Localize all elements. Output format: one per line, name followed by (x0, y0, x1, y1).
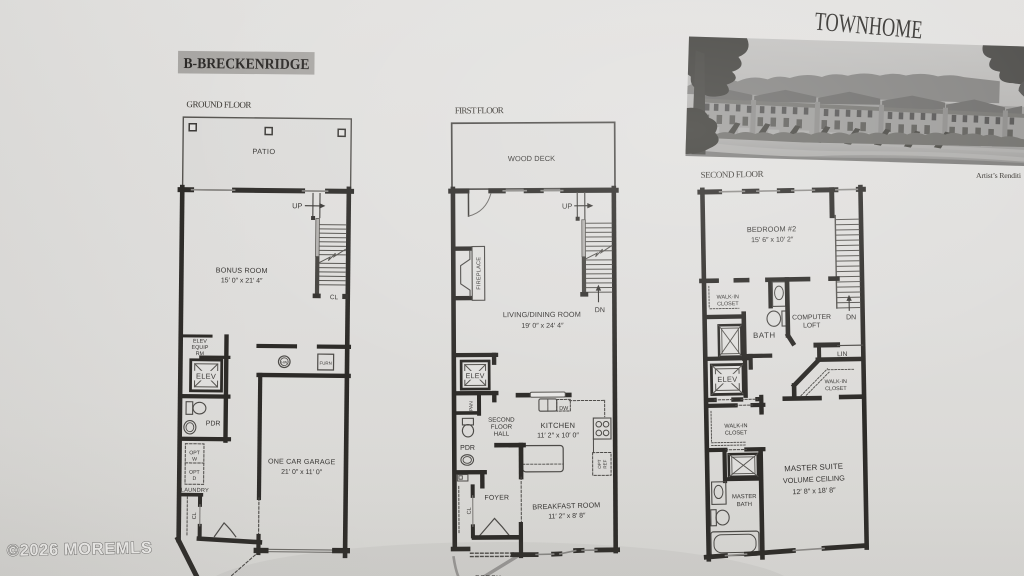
svg-text:BATH: BATH (737, 502, 752, 508)
svg-text:11′ 2″ x 10′ 0″: 11′ 2″ x 10′ 0″ (537, 432, 579, 439)
svg-text:UP: UP (292, 201, 302, 210)
svg-text:CLOSET: CLOSET (825, 386, 847, 392)
svg-text:WALK-IN: WALK-IN (724, 423, 747, 429)
svg-text:CL: CL (330, 294, 339, 301)
svg-text:DW: DW (559, 406, 569, 412)
svg-text:DN: DN (846, 314, 856, 321)
svg-text:BATH: BATH (753, 331, 776, 340)
svg-text:WOOD DECK: WOOD DECK (508, 154, 555, 163)
svg-text:HW: HW (281, 360, 288, 364)
svg-text:LOFT: LOFT (803, 322, 820, 329)
svg-text:COMPUTER: COMPUTER (792, 314, 831, 322)
svg-text:LIN: LIN (837, 351, 848, 358)
svg-text:WALK-IN: WALK-IN (717, 294, 739, 300)
svg-text:FIRST FLOOR: FIRST FLOOR (455, 105, 504, 115)
svg-text:UP: UP (562, 202, 572, 211)
svg-text:MASTER: MASTER (732, 494, 757, 500)
svg-text:©2026 MOREMLS: ©2026 MOREMLS (7, 539, 153, 560)
svg-text:KITCHEN: KITCHEN (541, 421, 576, 430)
svg-text:BEDROOM #2: BEDROOM #2 (747, 224, 797, 234)
svg-text:FOYER: FOYER (484, 495, 509, 502)
svg-text:REF: REF (602, 459, 607, 468)
svg-text:FURN: FURN (320, 361, 332, 366)
svg-text:CL: CL (467, 507, 473, 514)
svg-text:FIREPLACE: FIREPLACE (476, 257, 482, 290)
svg-text:CLOSET: CLOSET (725, 430, 748, 436)
svg-text:D: D (192, 476, 196, 482)
svg-text:Artist’s Renditi: Artist’s Renditi (976, 171, 1022, 180)
svg-text:EQUIP: EQUIP (191, 345, 208, 351)
svg-text:ELEV: ELEV (193, 339, 207, 345)
svg-text:11′ 2″ x 8′ 8″: 11′ 2″ x 8′ 8″ (548, 512, 586, 520)
svg-text:OPT: OPT (597, 459, 602, 469)
svg-text:CL: CL (192, 512, 198, 519)
svg-text:RM: RM (196, 351, 205, 357)
svg-text:15′ 6″ x 10′ 2″: 15′ 6″ x 10′ 2″ (751, 236, 794, 244)
svg-text:HALL: HALL (494, 431, 510, 438)
svg-text:PAN: PAN (469, 401, 475, 411)
svg-text:LIVING/DINING ROOM: LIVING/DINING ROOM (503, 310, 581, 319)
svg-text:B-BRECKENRIDGE: B-BRECKENRIDGE (183, 56, 309, 73)
svg-text:BONUS ROOM: BONUS ROOM (216, 265, 268, 275)
svg-text:19′ 0″ x 24′ 4″: 19′ 0″ x 24′ 4″ (521, 323, 564, 330)
svg-text:15′ 0″ x 21′ 4″: 15′ 0″ x 21′ 4″ (221, 277, 263, 284)
svg-text:OPT: OPT (189, 470, 201, 476)
svg-text:ELEV: ELEV (717, 375, 737, 384)
svg-text:GROUND FLOOR: GROUND FLOOR (186, 99, 251, 110)
svg-text:OPT: OPT (189, 450, 201, 456)
svg-text:PDR: PDR (206, 420, 221, 427)
svg-text:SECOND FLOOR: SECOND FLOOR (700, 169, 763, 180)
svg-text:CLOSET: CLOSET (717, 301, 739, 307)
svg-text:W: W (192, 457, 197, 463)
svg-text:ELEV: ELEV (466, 373, 485, 380)
svg-text:21′ 0″ x 11′ 0″: 21′ 0″ x 11′ 0″ (281, 469, 323, 476)
svg-text:PATIO: PATIO (252, 147, 275, 156)
svg-text:DN: DN (595, 307, 605, 314)
svg-text:PDR: PDR (460, 445, 475, 452)
svg-text:WALK-IN: WALK-IN (825, 379, 847, 385)
svg-text:ELEV: ELEV (196, 372, 216, 381)
svg-text:FLOOR: FLOOR (491, 424, 513, 431)
svg-text:ONE CAR GARAGE: ONE CAR GARAGE (268, 458, 336, 467)
